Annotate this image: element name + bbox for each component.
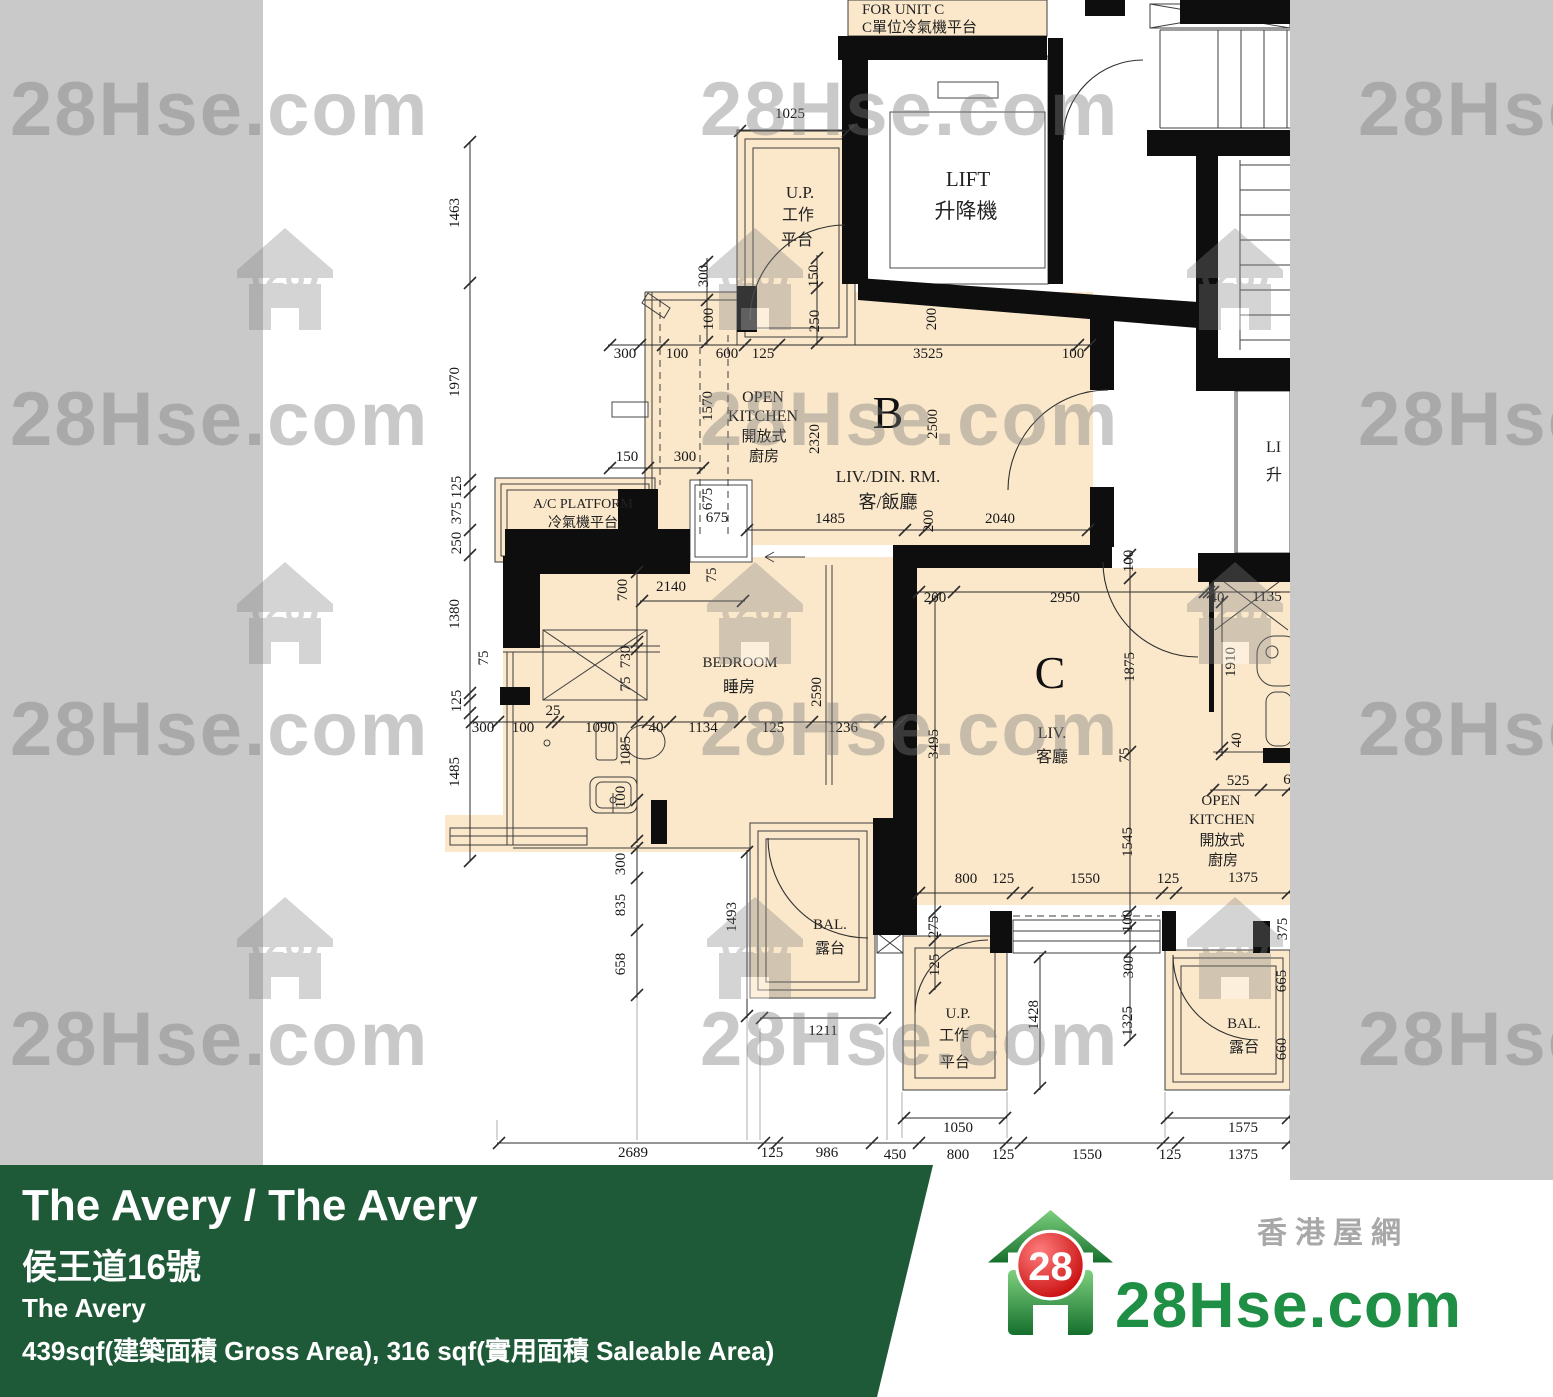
svg-text:LI: LI — [1266, 439, 1281, 456]
svg-text:1575: 1575 — [1228, 1120, 1258, 1136]
svg-text:1485: 1485 — [447, 757, 463, 787]
watermark-text: 28Hse.com — [700, 997, 1119, 1082]
svg-text:1085: 1085 — [618, 736, 634, 766]
svg-text:200: 200 — [921, 510, 937, 533]
svg-text:28: 28 — [1215, 254, 1255, 295]
svg-text:800: 800 — [947, 1147, 970, 1163]
svg-text:200: 200 — [924, 308, 940, 331]
svg-text:升降機: 升降機 — [935, 199, 998, 223]
svg-text:100: 100 — [1121, 550, 1137, 573]
svg-text:986: 986 — [816, 1145, 839, 1161]
svg-text:835: 835 — [613, 894, 629, 917]
svg-text:250: 250 — [807, 310, 823, 333]
watermark-text: 28Hse.com — [1358, 997, 1553, 1082]
watermark-text: 28Hse.com — [700, 67, 1119, 152]
svg-text:75: 75 — [476, 651, 492, 666]
svg-text:1463: 1463 — [447, 198, 463, 228]
svg-text:28: 28 — [735, 588, 775, 629]
svg-text:28: 28 — [1215, 923, 1255, 964]
svg-text:660: 660 — [1274, 1038, 1290, 1061]
watermark-text: 28Hse.com — [1358, 377, 1553, 462]
svg-text:露台: 露台 — [1229, 1039, 1259, 1056]
svg-text:1875: 1875 — [1122, 652, 1138, 682]
svg-text:125: 125 — [927, 954, 943, 977]
svg-text:BAL.: BAL. — [813, 917, 847, 933]
svg-text:150: 150 — [806, 265, 822, 288]
svg-text:300: 300 — [472, 720, 495, 736]
svg-text:730: 730 — [618, 646, 634, 669]
svg-text:1550: 1550 — [1072, 1147, 1102, 1163]
svg-text:75: 75 — [1117, 748, 1133, 763]
svg-text:28: 28 — [1215, 588, 1255, 629]
svg-text:OPEN: OPEN — [1201, 793, 1240, 809]
svg-text:525: 525 — [1227, 773, 1250, 789]
svg-text:100: 100 — [1120, 910, 1136, 933]
svg-text:800: 800 — [955, 871, 978, 887]
svg-text:2040: 2040 — [985, 511, 1015, 527]
svg-text:125: 125 — [992, 871, 1015, 887]
svg-text:2950: 2950 — [1050, 590, 1080, 606]
wall-shelf — [612, 402, 648, 417]
site-tagline: 香港屋網 — [1257, 1208, 1409, 1252]
watermark-text: 28Hse.com — [700, 377, 1119, 462]
svg-text:125: 125 — [1157, 871, 1180, 887]
svg-text:100: 100 — [701, 308, 717, 331]
watermark-house-icon: 28 — [237, 562, 333, 664]
svg-text:40: 40 — [1229, 733, 1245, 748]
svg-text:100: 100 — [512, 720, 535, 736]
svg-text:LIFT: LIFT — [946, 167, 991, 191]
logo-badge-number: 28 — [1028, 1245, 1073, 1289]
house-logo-icon: 28 — [988, 1205, 1113, 1355]
watermark-text: 28Hse.com — [10, 377, 429, 462]
svg-text:28: 28 — [735, 254, 775, 295]
svg-text:1375: 1375 — [1228, 1147, 1258, 1163]
svg-text:700: 700 — [615, 579, 631, 602]
svg-text:125: 125 — [992, 1147, 1015, 1163]
svg-text:LIV./DIN. RM.: LIV./DIN. RM. — [836, 467, 941, 486]
svg-text:125: 125 — [761, 1145, 784, 1161]
svg-text:1375: 1375 — [1228, 870, 1258, 886]
svg-text:6: 6 — [1283, 772, 1291, 788]
svg-text:600: 600 — [716, 346, 739, 362]
watermark-text: 28Hse.com — [1358, 687, 1553, 772]
svg-text:工作: 工作 — [782, 206, 814, 224]
svg-text:28: 28 — [265, 923, 305, 964]
svg-text:40: 40 — [649, 720, 664, 736]
svg-text:100: 100 — [666, 346, 689, 362]
watermark-house-icon: 28 — [237, 228, 333, 330]
svg-text:A/C PLATFORM: A/C PLATFORM — [533, 497, 634, 512]
svg-text:1550: 1550 — [1070, 871, 1100, 887]
svg-text:28: 28 — [735, 923, 775, 964]
svg-text:2689: 2689 — [618, 1145, 648, 1161]
svg-text:125: 125 — [1159, 1147, 1182, 1163]
watermark-text: 28Hse.com — [10, 67, 429, 152]
watermark-house-icon: 28 — [237, 897, 333, 999]
svg-text:675: 675 — [700, 488, 716, 511]
svg-text:升: 升 — [1266, 466, 1282, 484]
svg-text:658: 658 — [613, 953, 629, 976]
svg-text:675: 675 — [706, 510, 729, 526]
svg-text:BAL.: BAL. — [1227, 1016, 1261, 1032]
svg-text:100: 100 — [613, 786, 629, 809]
svg-text:1970: 1970 — [447, 367, 463, 397]
svg-text:28: 28 — [265, 588, 305, 629]
svg-text:1545: 1545 — [1120, 827, 1136, 857]
svg-text:200: 200 — [924, 590, 947, 606]
svg-text:375: 375 — [449, 502, 465, 525]
svg-text:125: 125 — [752, 346, 775, 362]
svg-text:125: 125 — [449, 690, 465, 713]
svg-text:廚房: 廚房 — [1208, 851, 1238, 869]
watermark-text: 28Hse.com — [10, 997, 429, 1082]
svg-text:300: 300 — [1121, 956, 1137, 979]
svg-text:25: 25 — [546, 703, 561, 719]
svg-text:1380: 1380 — [447, 599, 463, 629]
property-address: 侯王道16號 — [22, 1239, 201, 1290]
svg-text:275: 275 — [926, 916, 942, 939]
svg-text:150: 150 — [616, 449, 639, 465]
svg-text:1325: 1325 — [1120, 1006, 1136, 1036]
svg-text:平台: 平台 — [781, 231, 813, 249]
svg-text:300: 300 — [674, 449, 697, 465]
svg-text:FOR UNIT C: FOR UNIT C — [862, 2, 944, 18]
property-area: 439sqf(建築面積 Gross Area), 316 sqf(實用面積 Sa… — [22, 1331, 774, 1368]
svg-text:冷氣機平台: 冷氣機平台 — [548, 515, 618, 531]
svg-text:75: 75 — [618, 677, 634, 692]
watermark-text: 28Hse.com — [1358, 67, 1553, 152]
svg-text:300: 300 — [613, 853, 629, 876]
svg-text:75: 75 — [704, 568, 720, 583]
window-bay-livC — [1013, 920, 1160, 953]
svg-text:100: 100 — [1062, 346, 1085, 362]
svg-text:客/飯廳: 客/飯廳 — [858, 492, 917, 512]
svg-text:28: 28 — [265, 254, 305, 295]
property-name-en: The Avery — [22, 1293, 146, 1324]
site-brand-text: 28Hse.com — [1115, 1268, 1462, 1342]
svg-text:665: 665 — [1274, 970, 1290, 993]
watermark-text: 28Hse.com — [10, 687, 429, 772]
svg-text:3525: 3525 — [913, 346, 943, 362]
svg-text:300: 300 — [614, 346, 637, 362]
svg-text:C單位冷氣機平台: C單位冷氣機平台 — [862, 19, 977, 36]
svg-text:露台: 露台 — [815, 940, 845, 957]
svg-text:125: 125 — [449, 476, 465, 499]
svg-text:1090: 1090 — [585, 720, 615, 736]
svg-text:450: 450 — [884, 1147, 907, 1163]
svg-text:250: 250 — [449, 532, 465, 555]
svg-text:1050: 1050 — [943, 1120, 973, 1136]
property-title: The Avery / The Avery — [22, 1181, 478, 1231]
svg-text:U.P.: U.P. — [786, 183, 814, 202]
svg-text:KITCHEN: KITCHEN — [1189, 812, 1255, 828]
svg-text:1485: 1485 — [815, 511, 845, 527]
watermark-text: 28Hse.com — [700, 687, 1119, 772]
svg-text:開放式: 開放式 — [1199, 832, 1244, 849]
svg-text:2140: 2140 — [656, 579, 686, 595]
site-logo: 28 28Hse.com 香港屋網 — [985, 1200, 1545, 1390]
